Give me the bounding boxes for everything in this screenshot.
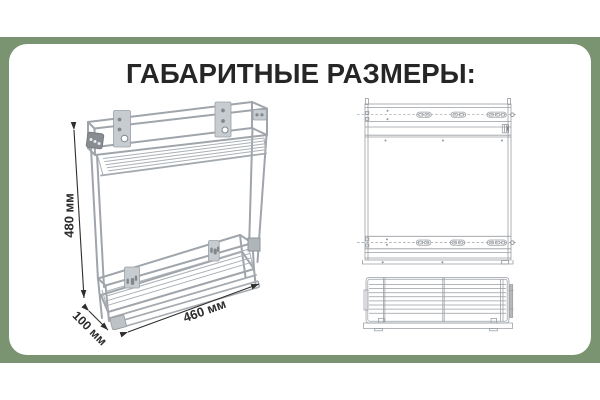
- svg-text:480 мм: 480 мм: [62, 193, 77, 238]
- svg-text:460 мм: 460 мм: [181, 296, 228, 325]
- svg-text:100 мм: 100 мм: [70, 308, 110, 348]
